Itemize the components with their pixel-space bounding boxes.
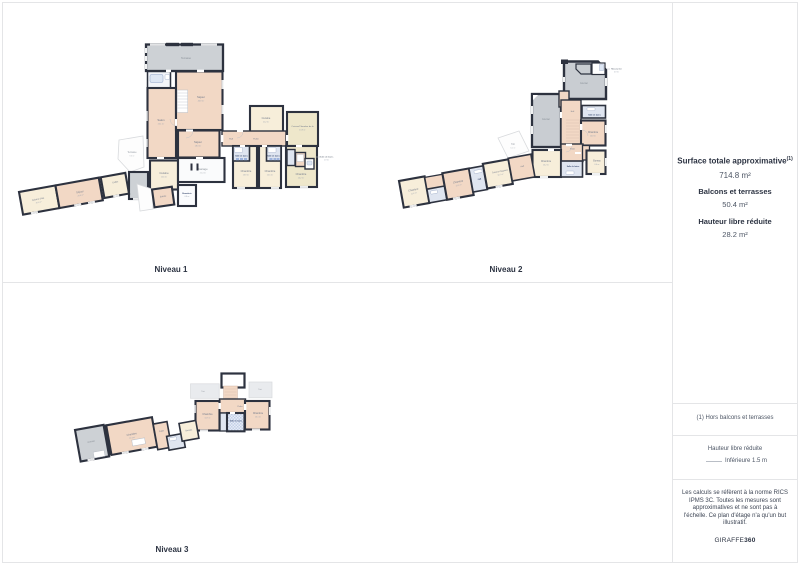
svg-text:Chambre: Chambre [253,412,264,415]
svg-text:Grenier: Grenier [542,118,550,121]
svg-text:13.1 m²: 13.1 m² [255,415,261,418]
svg-text:12.5 m²: 12.5 m² [267,174,274,177]
svg-text:11.2 m²: 11.2 m² [263,121,270,124]
svg-text:6.8 m²: 6.8 m² [185,195,190,198]
svg-text:Séjour: Séjour [197,95,205,99]
svg-text:6.1 m²: 6.1 m² [510,146,515,149]
svg-text:Salle de bains: Salle de bains [267,156,280,158]
svg-text:12.6 m²: 12.6 m² [161,176,168,179]
svg-text:Salle de bains: Salle de bains [320,157,335,159]
svg-text:Mezzanine: Mezzanine [611,69,622,71]
svg-text:25.1 m²: 25.1 m² [158,123,165,126]
svg-text:Chambre: Chambre [241,169,252,173]
svg-text:13.9 m²: 13.9 m² [299,129,306,132]
svg-text:Salle de bains: Salle de bains [235,156,248,158]
svg-text:Séjour: Séjour [194,140,202,144]
svg-text:Chambre: Chambre [265,169,276,173]
svg-text:Toit: Toit [201,390,205,393]
svg-text:Hall: Hall [571,111,575,113]
svg-text:Chambre: Chambre [588,131,599,134]
svg-text:14.2 m²: 14.2 m² [298,177,305,180]
svg-text:40.9 m²: 40.9 m² [198,100,205,103]
svg-text:Palier: Palier [237,406,242,408]
svg-text:Chambre: Chambre [202,413,213,416]
svg-text:Cuisine: Cuisine [262,116,271,120]
svg-text:Cuisine/Chambre de la: Cuisine/Chambre de la [291,125,314,128]
svg-text:Hall: Hall [229,139,233,141]
svg-text:Cuisine: Cuisine [159,171,169,175]
svg-text:Grenier: Grenier [580,82,588,85]
svg-text:6.6 m²: 6.6 m² [594,163,599,166]
svg-text:Garage: Garage [198,167,208,171]
svg-text:Toit: Toit [511,143,515,146]
svg-text:Toit: Toit [258,388,262,391]
svg-text:9.3 m²: 9.3 m² [129,155,134,158]
svg-text:13.2 m²: 13.2 m² [543,164,549,167]
svg-text:1.9 m²: 1.9 m² [324,158,329,161]
svg-text:Terrasse: Terrasse [127,151,137,154]
svg-text:Palier: Palier [253,138,259,141]
svg-text:Bureau: Bureau [593,160,601,163]
svg-text:Chambre: Chambre [296,172,307,176]
svg-text:10.8 m²: 10.8 m² [590,135,596,138]
svg-text:Salle de bains: Salle de bains [567,166,580,168]
svg-text:Salon: Salon [157,118,165,122]
svg-text:5.9 m²: 5.9 m² [614,70,619,73]
svg-text:Salle de bains: Salle de bains [588,115,601,117]
svg-text:13.9 m²: 13.9 m² [243,174,250,177]
svg-text:Salle de bains: Salle de bains [230,421,243,423]
svg-text:18.3 m²: 18.3 m² [195,145,202,148]
svg-text:Chambre: Chambre [541,160,552,163]
svg-text:13.7 m²: 13.7 m² [204,416,210,419]
svg-text:Buanderie: Buanderie [182,193,191,195]
svg-text:21.4 m²: 21.4 m² [200,172,207,175]
svg-text:Terrasse: Terrasse [181,56,192,60]
